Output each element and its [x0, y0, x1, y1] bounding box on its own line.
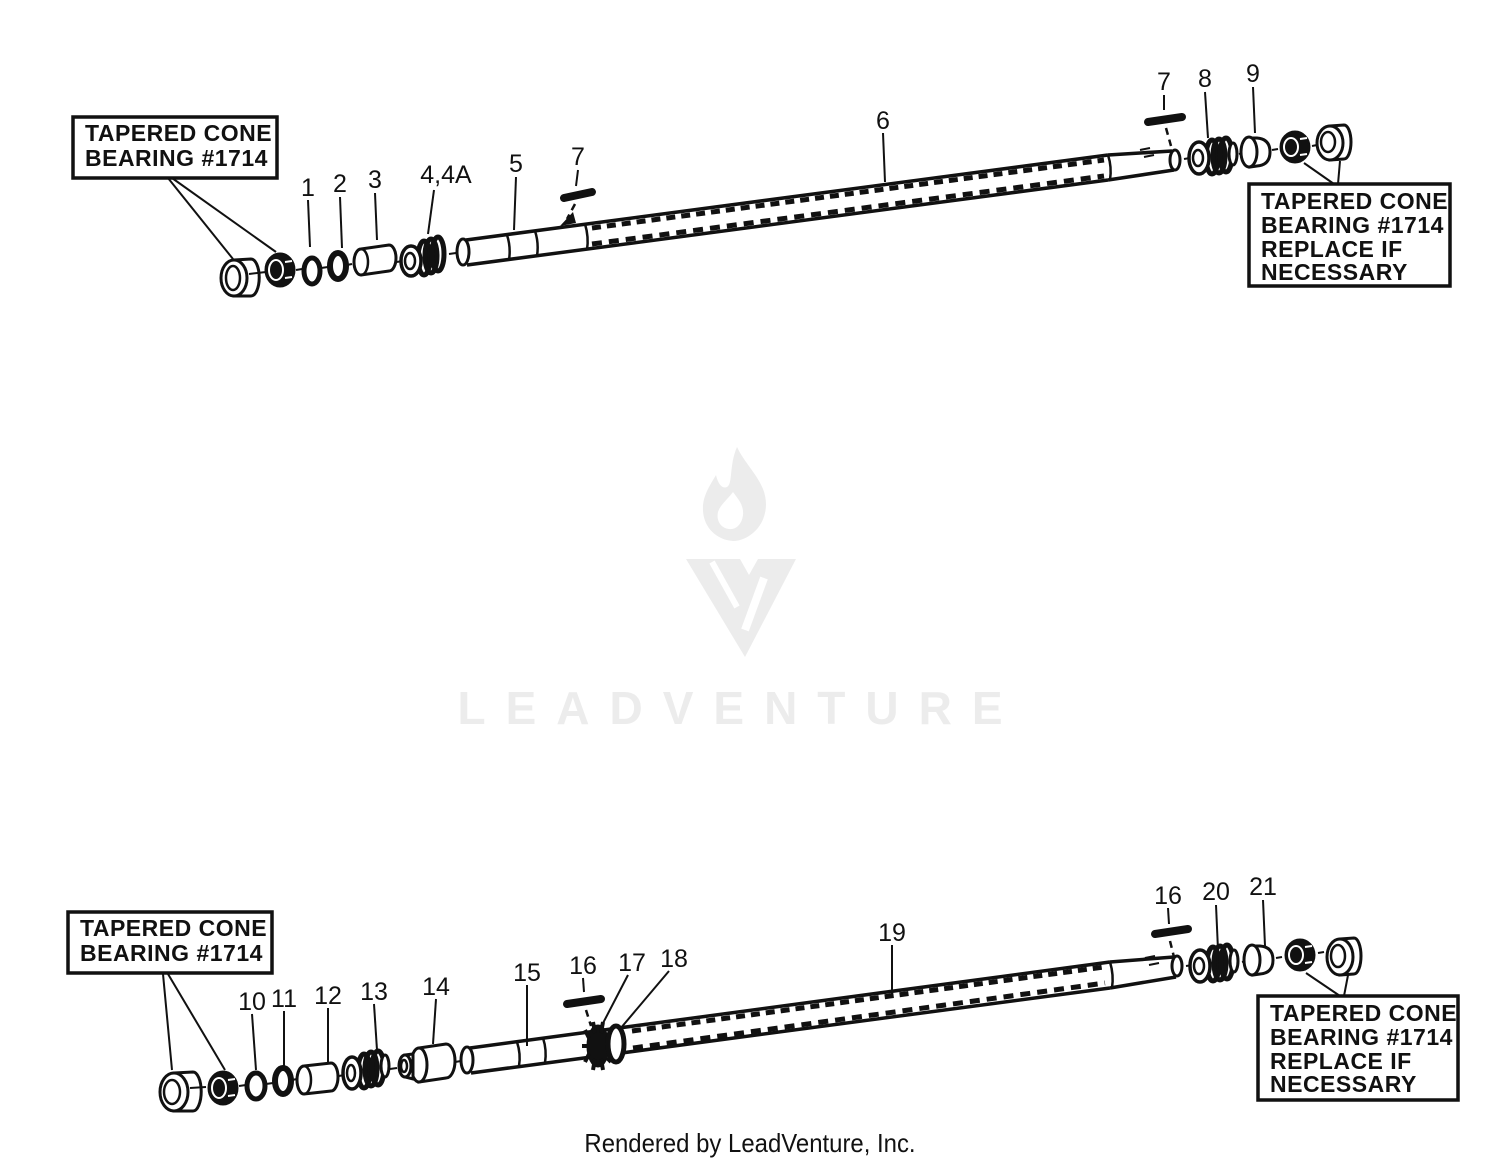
diagram-top: TAPERED CONE BEARING #1714 TAPERED CONE …	[73, 60, 1450, 296]
callout-tapered-cone-bearing-top-right: TAPERED CONE BEARING #1714 REPLACE IF NE…	[1249, 161, 1450, 286]
axis-tick	[1272, 149, 1278, 150]
part-label-18: 18	[660, 945, 688, 973]
part-label-8: 8	[1198, 65, 1212, 93]
cap-part-21	[1244, 945, 1273, 975]
part-label-21: 21	[1249, 873, 1277, 901]
axis-tick	[296, 269, 302, 270]
callout-leader	[1306, 973, 1340, 996]
part-label-7-right: 7	[1157, 68, 1171, 96]
callout-line: BEARING #1714	[85, 145, 268, 171]
coupler-part-14	[399, 1044, 455, 1082]
tapered-cone-bearing-top-left	[265, 253, 295, 287]
axis-tick	[449, 253, 456, 254]
washer-part-11	[275, 1068, 291, 1094]
part-label-6: 6	[876, 107, 890, 135]
axis-tick	[390, 1068, 397, 1069]
callout-leader	[168, 974, 225, 1070]
adjusting-nut-part-4	[401, 237, 444, 276]
callout-line: NECESSARY	[1270, 1071, 1417, 1097]
part-label-9: 9	[1246, 60, 1260, 88]
adjusting-nut-part-8	[1189, 138, 1237, 174]
cap-part-9	[1241, 137, 1270, 167]
pin-marker-part-16-right	[1155, 908, 1188, 957]
washer-part-2	[330, 253, 346, 279]
callout-line: TAPERED CONE	[1270, 1000, 1457, 1026]
adjusting-nut-part-20	[1190, 945, 1238, 982]
footer-credit: Rendered by LeadVenture, Inc.	[60, 1128, 1440, 1159]
spacer-part-3	[354, 245, 396, 275]
callout-tapered-cone-bearing-top-left: TAPERED CONE BEARING #1714	[73, 117, 277, 259]
parts-diagram-page: LEADVENTURE TAPERED CONE BEARING #1714 T…	[0, 0, 1500, 1168]
part-label-16-mid: 16	[569, 952, 597, 980]
diagram-bottom: TAPERED CONE BEARING #1714 TAPERED CONE …	[68, 873, 1458, 1111]
axis-tick	[266, 1083, 273, 1084]
part-label-19: 19	[878, 919, 906, 947]
pin-marker-part-16-mid	[567, 978, 601, 1026]
callout-leader	[168, 178, 233, 259]
tapered-cone-bearing-top-right	[1280, 131, 1310, 163]
part-label-1: 1	[301, 174, 315, 202]
parts-diagram: LEADVENTURE TAPERED CONE BEARING #1714 T…	[0, 0, 1500, 1168]
leadventure-watermark: LEADVENTURE	[457, 447, 1022, 734]
part-label-14: 14	[422, 973, 450, 1001]
axis-tick	[1318, 952, 1324, 953]
part-label-10: 10	[238, 988, 266, 1016]
part-label-11: 11	[271, 985, 297, 1013]
part-label-2: 2	[333, 170, 347, 198]
part-label-7-mid: 7	[571, 143, 585, 171]
callout-line: TAPERED CONE	[1261, 188, 1448, 214]
adjusting-nut-part-13	[343, 1051, 389, 1089]
callout-line: TAPERED CONE	[85, 120, 272, 146]
callout-line: BEARING #1714	[1261, 212, 1444, 238]
callout-leader	[163, 974, 172, 1070]
callout-leader	[1304, 163, 1334, 184]
axis-tick	[321, 267, 328, 268]
bearing-cup-bottom-right	[1327, 938, 1361, 975]
bearing-cup-top-right	[1317, 125, 1351, 160]
callout-tapered-cone-bearing-bottom-right: TAPERED CONE BEARING #1714 REPLACE IF NE…	[1258, 970, 1458, 1100]
washer-part-1	[304, 258, 320, 284]
part-label-5: 5	[509, 150, 523, 178]
tapered-cone-bearing-bottom-right	[1285, 939, 1315, 971]
part-label-20: 20	[1202, 878, 1230, 906]
part-label-16-right: 16	[1154, 882, 1182, 910]
arrowhead	[560, 212, 576, 226]
callout-line: BEARING #1714	[1270, 1024, 1453, 1050]
pin-marker-part-7-right	[1148, 95, 1182, 146]
watermark-brand-text: LEADVENTURE	[457, 682, 1022, 734]
part-label-3: 3	[368, 166, 382, 194]
part-label-13: 13	[360, 978, 388, 1006]
axle-shaft-part-6	[457, 148, 1180, 265]
v-logo-icon	[686, 559, 796, 657]
callout-line: TAPERED CONE	[80, 915, 267, 941]
bearing-cup-top-left	[221, 259, 259, 296]
callout-leader	[172, 178, 276, 252]
axis-tick	[1276, 957, 1282, 958]
part-label-4-4A: 4,4A	[420, 161, 472, 189]
axis-tick	[190, 1087, 206, 1088]
callout-line: BEARING #1714	[80, 940, 263, 966]
axis-tick	[347, 264, 352, 265]
spacer-part-12	[297, 1063, 338, 1094]
pin-marker-part-7-mid	[560, 170, 592, 226]
part-labels-bottom: 10 11 12 13 14 15 16 17 18 19 16 20 21	[238, 873, 1277, 1070]
part-label-17: 17	[618, 949, 646, 977]
tapered-cone-bearing-bottom-left	[208, 1071, 238, 1105]
washer-part-10	[247, 1073, 265, 1099]
bearing-cup-bottom-left	[160, 1072, 201, 1111]
part-label-12: 12	[314, 982, 342, 1010]
washer-part-18	[608, 1026, 624, 1062]
part-label-15: 15	[513, 959, 541, 987]
callout-leader	[1338, 161, 1340, 184]
callout-line: NECESSARY	[1261, 259, 1408, 285]
